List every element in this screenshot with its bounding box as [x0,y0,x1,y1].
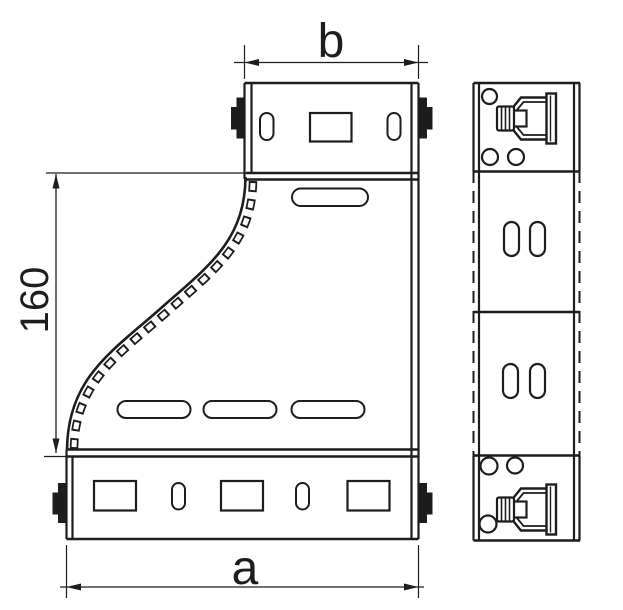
side-section-upper-middle [504,222,545,256]
bolt-icon [419,483,433,523]
slot-oval [530,364,545,398]
dimension-b: b [234,15,428,79]
slot-oval [504,222,519,256]
side-section-bottom [480,458,557,535]
front-top-section [231,83,433,539]
coupler-icon [497,485,556,535]
bolt-icon [231,98,245,139]
bolt-icon [419,98,433,139]
side-view [474,83,581,541]
technical-drawing: b a 160 [0,0,623,610]
dim-b-arrow-left [245,59,260,66]
dim-b-arrow-right [404,59,419,66]
slot-long [118,401,191,418]
slot-oval [172,483,185,510]
slot-oval [388,113,401,140]
hole-circle [481,458,498,475]
drawing-canvas: b a 160 [0,0,623,610]
side-section-top [482,89,556,165]
coupler-flange [547,94,557,144]
slot-oval [503,364,518,398]
bolt-icon [53,483,67,523]
slot-rect [348,481,390,511]
front-transition-section [67,177,368,450]
slot-oval [296,483,309,510]
slot-oval [530,222,545,256]
slot-rect [94,481,136,511]
front-bottom-section [53,450,433,540]
coupler-icon [497,94,556,144]
dim-a-label: a [232,542,259,595]
hole-circle [482,149,498,165]
slot-oval [260,113,274,140]
slot-rect [221,481,263,511]
dim-a-arrow-right [404,584,419,591]
hole-circle [480,516,497,533]
hole-circle [507,458,523,474]
slot-long [292,401,365,418]
dim-b-label: b [318,15,345,68]
dim-160-arrow-bottom [53,439,60,454]
slot-long [292,189,368,207]
dim-a-arrow-left [67,584,82,591]
s-curve-flange-dashes-inner [74,181,253,450]
dimension-160: 160 [13,173,250,457]
coupler-nub [514,111,527,127]
dim-160-label: 160 [13,267,57,334]
hole-circle [508,149,524,165]
slot-long [204,401,277,418]
dimension-a: a [60,542,424,598]
slot-rect [310,113,352,142]
dim-160-arrow-top [53,174,60,189]
hole-circle [482,89,497,104]
front-view: b a 160 [13,15,433,598]
s-curve-edge [67,177,246,450]
side-section-lower-middle [503,364,545,398]
